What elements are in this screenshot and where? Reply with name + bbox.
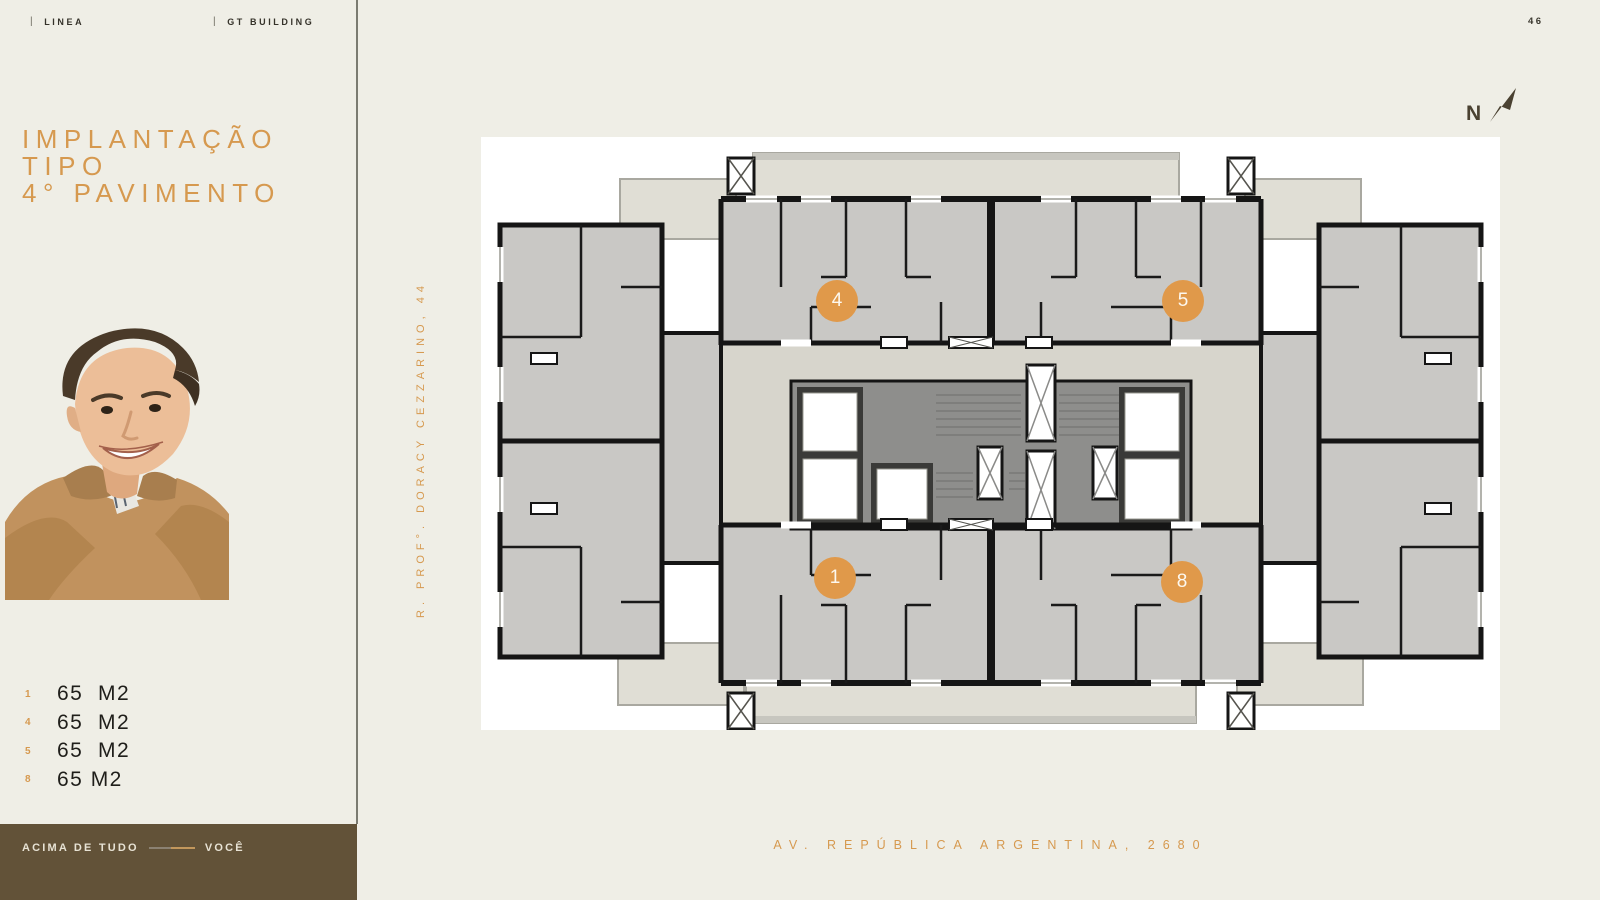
unit-marker-4: 4 xyxy=(816,280,858,322)
brand-gt-building-label: GT BUILDING xyxy=(227,17,314,27)
brand-gt-building: | GT BUILDING xyxy=(213,16,314,27)
street-label-bottom: AV. REPÚBLICA ARGENTINA, 2680 xyxy=(481,838,1500,852)
page-number: 46 xyxy=(1528,16,1544,27)
legend-unit-number: 5 xyxy=(25,746,57,757)
tagline: ACIMA DE TUDO VOCÊ xyxy=(22,842,245,854)
north-arrow-icon: N xyxy=(1448,84,1520,136)
tagline-right: VOCÊ xyxy=(205,842,245,854)
slide-canvas: { "header": { "brand_left": "LINEA", "br… xyxy=(0,0,1600,900)
brand-linea: | LINEA xyxy=(30,16,84,27)
page-title: IMPLANTAÇÃO TIPO 4° PAVIMENTO xyxy=(22,126,281,207)
legend-unit-number: 4 xyxy=(25,717,57,728)
north-arrow-glyph xyxy=(1488,84,1520,124)
brand-pipe-icon: | xyxy=(30,16,35,27)
brand-pipe-icon: | xyxy=(213,16,218,27)
legend-unit-area: 65 M2 xyxy=(57,682,130,706)
legend-row-unit-8: 8 65 M2 xyxy=(25,766,325,795)
floor-plan-drawing xyxy=(481,137,1500,730)
legend-unit-number: 8 xyxy=(25,774,57,785)
legend-unit-area: 65 M2 xyxy=(57,711,130,735)
floor-plan: 4 5 1 8 xyxy=(481,137,1500,730)
unit-marker-8: 8 xyxy=(1161,561,1203,603)
legend-unit-area: 65 M2 xyxy=(57,768,123,792)
tagline-left: ACIMA DE TUDO xyxy=(22,842,139,854)
page-title-line-3: 4° PAVIMENTO xyxy=(22,180,281,207)
agent-photo xyxy=(5,308,229,600)
agent-photo-illustration xyxy=(5,308,229,600)
legend-row-unit-5: 5 65 M2 xyxy=(25,737,325,766)
legend-unit-area: 65 M2 xyxy=(57,739,130,763)
legend-row-unit-4: 4 65 M2 xyxy=(25,709,325,738)
tagline-dash-icon xyxy=(149,847,171,849)
street-label-left: R. PROF°. DORACY CEZZARINO, 44 xyxy=(403,240,439,660)
tagline-dash-icon xyxy=(171,847,195,849)
north-label: N xyxy=(1466,102,1481,126)
unit-marker-5: 5 xyxy=(1162,280,1204,322)
footer-bar: ACIMA DE TUDO VOCÊ xyxy=(0,824,357,900)
page-title-line-2: TIPO xyxy=(22,153,281,180)
sidebar-divider xyxy=(356,0,358,824)
page-title-line-1: IMPLANTAÇÃO xyxy=(22,126,281,153)
unit-marker-1: 1 xyxy=(814,557,856,599)
legend-row-unit-1: 1 65 M2 xyxy=(25,680,325,709)
legend-unit-number: 1 xyxy=(25,689,57,700)
brand-linea-label: LINEA xyxy=(44,17,84,27)
unit-legend: 1 65 M2 4 65 M2 5 65 M2 8 65 M2 xyxy=(25,680,325,794)
